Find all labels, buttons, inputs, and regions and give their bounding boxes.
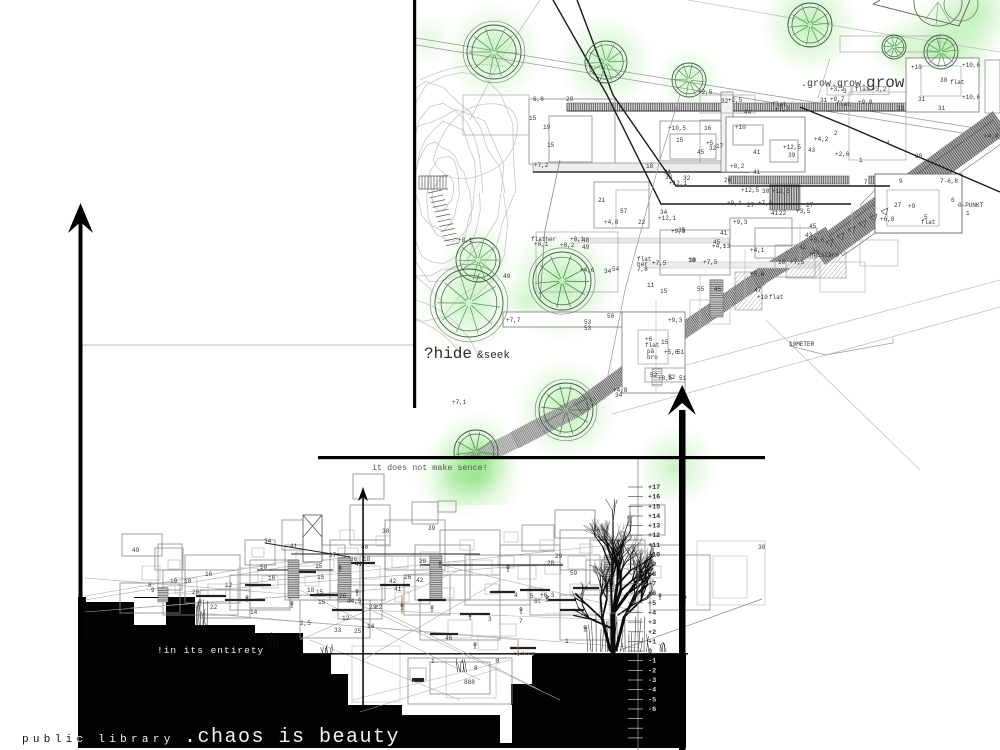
svg-text:31: 31: [897, 105, 905, 112]
svg-text:+8,1: +8,1: [534, 241, 549, 248]
svg-text:15: 15: [317, 574, 325, 581]
svg-text:+2: +2: [648, 629, 656, 637]
svg-text:+9,3: +9,3: [733, 219, 748, 226]
svg-text:3: 3: [488, 616, 492, 623]
svg-text:32: 32: [683, 175, 691, 182]
svg-text:8: 8: [496, 658, 500, 665]
svg-text:36: 36: [350, 556, 358, 563]
svg-text:+12,1: +12,1: [658, 215, 676, 222]
svg-text:flat: flat: [921, 219, 935, 226]
svg-text:22: 22: [779, 210, 787, 217]
svg-text:18: 18: [646, 163, 654, 170]
svg-text:45: 45: [714, 286, 722, 293]
svg-text:55: 55: [697, 286, 705, 293]
svg-text:16: 16: [704, 125, 712, 132]
svg-text:+9,3: +9,3: [671, 228, 686, 235]
svg-text:+2,6: +2,6: [835, 151, 850, 158]
svg-text:7,8: 7,8: [637, 266, 648, 273]
svg-text:42: 42: [799, 244, 807, 251]
svg-text:41: 41: [753, 169, 761, 176]
svg-text:heistårn: heistårn: [810, 252, 839, 259]
svg-text:10METER: 10METER: [789, 341, 815, 348]
svg-text:15: 15: [315, 563, 323, 570]
svg-text:44: 44: [744, 109, 752, 116]
svg-text:+7: +7: [648, 581, 656, 589]
svg-text:10: 10: [778, 259, 786, 266]
svg-text:+7,7: +7,7: [506, 317, 521, 324]
svg-text:42: 42: [416, 577, 424, 584]
svg-text:+13: +13: [648, 523, 660, 531]
svg-text:52: 52: [650, 372, 658, 379]
svg-text:41: 41: [394, 586, 402, 593]
svg-text:18: 18: [363, 556, 371, 563]
svg-text:+7,5: +7,5: [790, 259, 805, 266]
svg-text:grow: grow: [866, 74, 905, 92]
svg-text:+10: +10: [648, 552, 660, 560]
svg-text:+7,2: +7,2: [534, 162, 549, 169]
svg-text:+4,2: +4,2: [814, 136, 829, 143]
svg-text:2,5: 2,5: [300, 620, 311, 627]
svg-text:-1: -1: [648, 658, 656, 666]
svg-text:41: 41: [771, 210, 779, 217]
svg-text:&seek: &seek: [477, 350, 510, 362]
svg-text:0: 0: [648, 648, 652, 656]
svg-text:+4,6: +4,6: [580, 267, 595, 274]
svg-text:+10,5: +10,5: [668, 125, 686, 132]
svg-text:16: 16: [268, 575, 276, 582]
svg-text:12: 12: [342, 615, 350, 622]
svg-text:+10,6: +10,6: [962, 94, 980, 101]
svg-text:+10: +10: [911, 64, 922, 71]
svg-text:41: 41: [290, 543, 298, 550]
svg-text:11: 11: [647, 282, 655, 289]
svg-text:45: 45: [697, 149, 705, 156]
svg-text:+16: +16: [648, 494, 660, 502]
svg-text:51: 51: [679, 375, 687, 382]
svg-text:41: 41: [753, 149, 761, 156]
svg-text:+6: +6: [648, 590, 656, 598]
svg-text:50: 50: [607, 313, 615, 320]
svg-text:+3: +3: [723, 243, 731, 250]
svg-text:31: 31: [820, 97, 828, 104]
svg-text:7: 7: [519, 618, 523, 625]
svg-text:+9: +9: [908, 203, 916, 210]
svg-text:8: 8: [474, 665, 478, 672]
svg-text:42: 42: [389, 578, 397, 585]
svg-text:+1: +1: [648, 638, 656, 646]
svg-text:2: 2: [834, 130, 838, 137]
svg-text:7-6,8: 7-6,8: [940, 178, 958, 185]
svg-text:+15: +15: [648, 503, 660, 511]
svg-text:bro: bro: [647, 354, 658, 361]
svg-text:51: 51: [677, 349, 685, 356]
svg-text:15: 15: [318, 599, 326, 606]
svg-text:+10: +10: [757, 294, 768, 301]
svg-text:17: 17: [716, 143, 724, 150]
svg-text:.grow.grow.: .grow.grow.: [801, 79, 867, 90]
svg-text:+2,5: +2,5: [728, 97, 743, 104]
svg-text:47: 47: [754, 287, 762, 294]
svg-text:59: 59: [570, 570, 578, 577]
svg-text:+2,5: +2,5: [698, 89, 713, 96]
svg-text:12: 12: [225, 582, 233, 589]
svg-text:+4: +4: [648, 610, 656, 618]
svg-text:18: 18: [184, 578, 192, 585]
svg-text:+10: +10: [735, 124, 746, 131]
svg-text:34: 34: [264, 538, 272, 545]
svg-text:+12,5: +12,5: [772, 188, 790, 195]
svg-text:26: 26: [404, 574, 412, 581]
svg-text:6,8: 6,8: [533, 96, 544, 103]
svg-text:50: 50: [260, 564, 268, 571]
svg-text:28: 28: [915, 153, 923, 160]
svg-text:45: 45: [713, 239, 721, 246]
svg-text:10: 10: [689, 257, 697, 264]
svg-text:flat: flat: [769, 294, 783, 301]
svg-text:+10,6: +10,6: [962, 62, 980, 69]
svg-text:+7,1: +7,1: [452, 399, 467, 406]
svg-text:26: 26: [724, 177, 732, 184]
svg-text:19: 19: [543, 124, 551, 131]
svg-text:38: 38: [382, 528, 390, 535]
svg-text:30: 30: [940, 77, 948, 84]
svg-text:15: 15: [316, 589, 324, 596]
svg-text:+7,5: +7,5: [703, 259, 718, 266]
svg-text:+8,2: +8,2: [730, 163, 745, 170]
svg-text:6t: 6t: [534, 598, 541, 605]
svg-text:19: 19: [170, 578, 178, 585]
svg-text:1: 1: [431, 658, 435, 665]
svg-text:48: 48: [582, 237, 590, 244]
svg-text:9: 9: [899, 178, 903, 185]
svg-text:+4,8: +4,8: [604, 219, 619, 226]
svg-text:20: 20: [566, 96, 574, 103]
svg-text:26: 26: [339, 593, 347, 600]
svg-text:+4,1: +4,1: [750, 247, 765, 254]
svg-text:+5,6: +5,6: [810, 237, 825, 244]
svg-text:-5: -5: [648, 696, 656, 704]
svg-text:flat: flat: [836, 101, 850, 108]
svg-text:+3: +3: [648, 619, 656, 627]
svg-text:45: 45: [809, 223, 817, 230]
svg-text:15: 15: [547, 142, 555, 149]
svg-text:+8,1: +8,1: [458, 237, 473, 244]
svg-text:20: 20: [192, 589, 200, 596]
svg-text:1: 1: [966, 210, 970, 217]
svg-text:15: 15: [529, 115, 537, 122]
svg-text:30: 30: [758, 544, 766, 551]
svg-text:44,5: 44,5: [347, 598, 362, 605]
svg-text:+17: +17: [648, 484, 660, 492]
svg-text:-6: -6: [648, 706, 656, 714]
svg-text:+8: +8: [648, 571, 656, 579]
svg-text:57: 57: [620, 208, 628, 215]
svg-text:+7,2: +7,2: [775, 106, 790, 113]
svg-text:4: 4: [886, 140, 890, 147]
svg-text:38: 38: [762, 188, 770, 195]
svg-text:21: 21: [598, 197, 606, 204]
svg-text:41: 41: [720, 230, 728, 237]
svg-text:49: 49: [132, 547, 140, 554]
svg-text:33: 33: [334, 627, 342, 634]
svg-text:9: 9: [151, 587, 155, 594]
svg-text:+8,2: +8,2: [560, 242, 575, 249]
svg-text:!in its entirety: !in its entirety: [157, 645, 264, 656]
svg-text:40: 40: [361, 544, 369, 551]
svg-text:6: 6: [951, 197, 955, 204]
svg-text:49: 49: [582, 244, 590, 251]
svg-text:+4,4: +4,4: [984, 133, 999, 140]
svg-text:20: 20: [419, 558, 427, 565]
svg-text:sjakson: sjakson: [514, 651, 535, 657]
svg-text:1: 1: [565, 638, 569, 645]
svg-text:15: 15: [660, 288, 668, 295]
svg-text:29: 29: [555, 553, 563, 560]
svg-text:+6,8: +6,8: [880, 216, 895, 223]
svg-text:+7,5: +7,5: [652, 260, 667, 267]
svg-text:46: 46: [445, 635, 453, 642]
svg-text:-4: -4: [648, 687, 656, 695]
svg-text:27: 27: [747, 202, 755, 209]
svg-text:28: 28: [547, 560, 555, 567]
svg-text:+7,6: +7,6: [758, 200, 773, 207]
svg-text:15: 15: [676, 137, 684, 144]
svg-text:15: 15: [661, 339, 669, 346]
svg-text:52: 52: [668, 374, 676, 381]
svg-text:+9: +9: [648, 561, 656, 569]
svg-text:.chaos is beauty: .chaos is beauty: [184, 726, 400, 749]
svg-text:+5,6: +5,6: [750, 271, 765, 278]
svg-text:+11: +11: [648, 542, 660, 550]
svg-text:31: 31: [664, 169, 672, 176]
svg-text:1: 1: [859, 157, 863, 164]
svg-text:+5: +5: [648, 600, 656, 608]
svg-text:54: 54: [612, 266, 620, 273]
svg-text:+9,4: +9,4: [727, 200, 742, 207]
svg-text:-3: -3: [648, 677, 656, 685]
svg-text:22: 22: [638, 219, 646, 226]
svg-text:+12,5: +12,5: [741, 187, 759, 194]
svg-text:49: 49: [503, 273, 511, 280]
svg-text:0-PUNKT: 0-PUNKT: [958, 202, 984, 209]
svg-text:34: 34: [604, 268, 612, 275]
svg-text:23: 23: [369, 604, 377, 611]
svg-text:4: 4: [514, 592, 518, 599]
svg-text:43: 43: [808, 147, 816, 154]
svg-text:27: 27: [894, 202, 902, 209]
svg-text:34: 34: [615, 392, 623, 399]
svg-text:+9,3: +9,3: [668, 317, 683, 324]
svg-text:22: 22: [210, 604, 218, 611]
svg-text:888: 888: [464, 679, 475, 686]
svg-text:+6,3: +6,3: [540, 592, 555, 599]
svg-text:31: 31: [938, 105, 946, 112]
svg-text:-2: -2: [648, 667, 656, 675]
svg-text:?hide: ?hide: [424, 345, 472, 363]
svg-text:39: 39: [788, 152, 796, 159]
svg-text:+14: +14: [648, 513, 660, 521]
svg-text:14: 14: [250, 609, 258, 616]
svg-text:53: 53: [584, 325, 592, 332]
svg-text:25: 25: [354, 628, 362, 635]
svg-text:16: 16: [205, 571, 213, 578]
svg-text:+12,5: +12,5: [783, 144, 801, 151]
svg-text:+9,8: +9,8: [858, 99, 873, 106]
svg-text:+3,5: +3,5: [796, 208, 811, 215]
svg-text:37: 37: [329, 552, 337, 559]
svg-text:7: 7: [864, 179, 868, 186]
svg-text:+12: +12: [648, 532, 660, 540]
svg-text:31: 31: [918, 96, 926, 103]
svg-text:it does not make sence!: it does not make sence!: [372, 463, 488, 473]
svg-text:18: 18: [307, 587, 315, 594]
svg-text:14: 14: [367, 623, 375, 630]
svg-text:39: 39: [428, 525, 436, 532]
svg-text:flat: flat: [950, 79, 964, 86]
